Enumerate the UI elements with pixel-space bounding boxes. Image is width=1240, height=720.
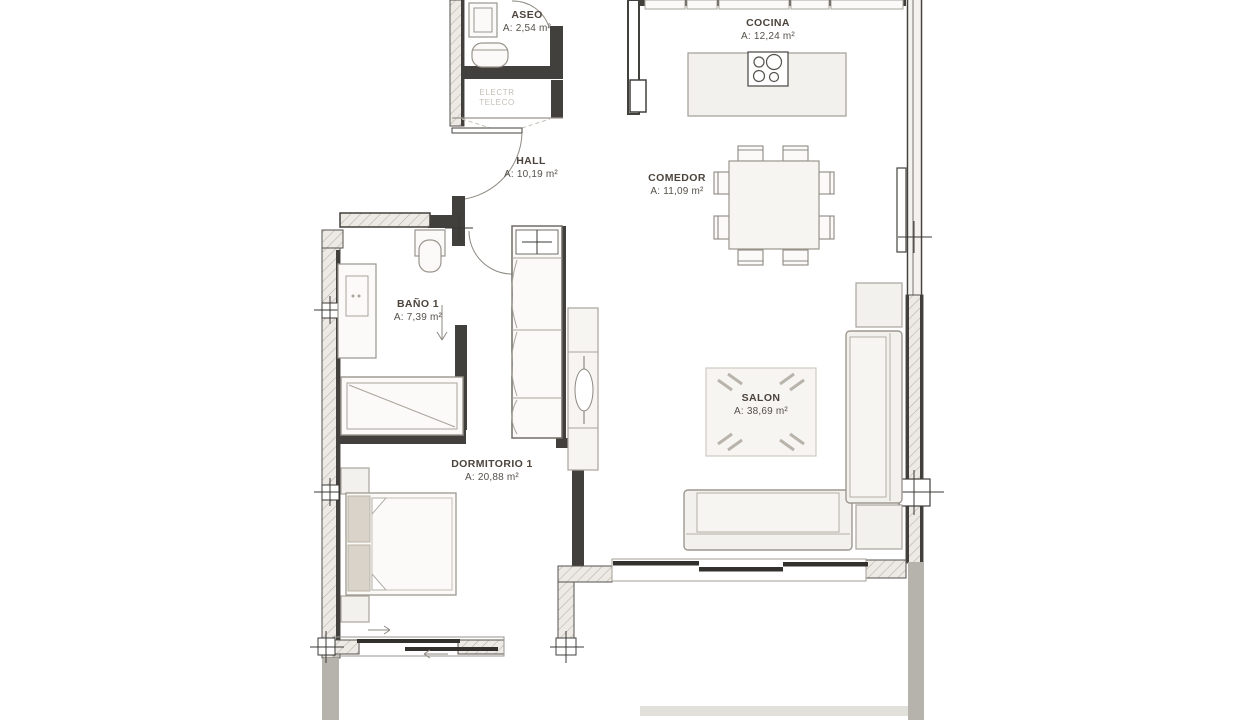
nightstand-top	[341, 468, 369, 494]
dining-window-wall	[897, 0, 923, 295]
entrance-door-arc	[453, 133, 522, 200]
bathroom-door-arc	[469, 231, 512, 274]
wardrobe	[512, 226, 563, 438]
bathroom-fixtures	[338, 230, 463, 435]
dining-set	[714, 146, 834, 265]
cooktop-icon	[748, 52, 788, 86]
closet-label-line1: ELECTR	[447, 88, 547, 98]
side-table-bottom	[856, 505, 902, 549]
salon-right-wall	[899, 295, 930, 563]
sofa-vertical	[846, 331, 902, 503]
sofa-horizontal	[684, 490, 852, 550]
tv-console	[568, 308, 598, 470]
bedroom-window	[333, 626, 504, 658]
bed	[346, 493, 456, 595]
aseo-toilet	[472, 43, 508, 67]
door-swing-arrow-icon	[437, 305, 447, 340]
floor-plan: ASEO A: 2,54 m² COCINA A: 12,24 m² HALL …	[0, 0, 1240, 720]
side-table-top	[856, 283, 902, 327]
utility-closet-label: ELECTR TELECO	[447, 88, 547, 108]
bathtub	[341, 377, 463, 435]
slide-arrow-right-icon	[368, 626, 390, 634]
aseo-door-arc	[512, 1, 549, 27]
kitchen-counter-row	[645, 0, 903, 9]
dining-table	[729, 161, 819, 249]
window-sash	[897, 168, 906, 252]
aseo-fixtures	[469, 3, 508, 67]
entrance-door	[452, 128, 522, 200]
bedroom-furniture	[341, 468, 456, 622]
salon-sliding-door	[558, 559, 906, 582]
kitchen-column	[630, 80, 646, 112]
floor-plan-drawing	[0, 0, 1240, 720]
slide-arrow-left-icon	[424, 650, 448, 658]
bathroom-sink-counter	[338, 264, 376, 358]
pillow	[348, 496, 370, 542]
closet-label-line2: TELECO	[447, 98, 547, 108]
kitchen-island	[688, 52, 846, 116]
salon-rug	[706, 368, 816, 456]
nightstand-bottom	[341, 596, 369, 622]
pillow	[348, 545, 370, 591]
